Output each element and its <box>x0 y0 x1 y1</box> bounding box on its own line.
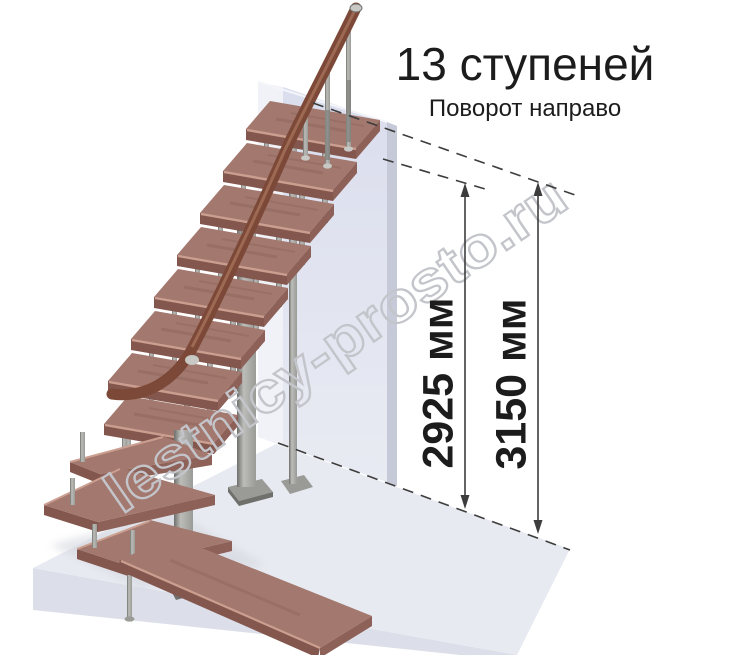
extension-line-step-top <box>383 159 492 191</box>
dimension-label-2925: 2925 мм <box>414 297 462 468</box>
heading-block: 13 ступеней Поворот направо <box>395 40 655 123</box>
page-title: 13 ступеней <box>395 40 655 88</box>
baluster <box>92 524 97 548</box>
baluster <box>80 432 85 462</box>
baluster <box>70 478 75 505</box>
tread-leg <box>127 575 132 618</box>
rail-end-cap <box>350 4 362 12</box>
rail-joint <box>185 355 199 365</box>
page-subtitle: Поворот направо <box>395 95 655 123</box>
dimension-label-3150: 3150 мм <box>487 298 535 469</box>
